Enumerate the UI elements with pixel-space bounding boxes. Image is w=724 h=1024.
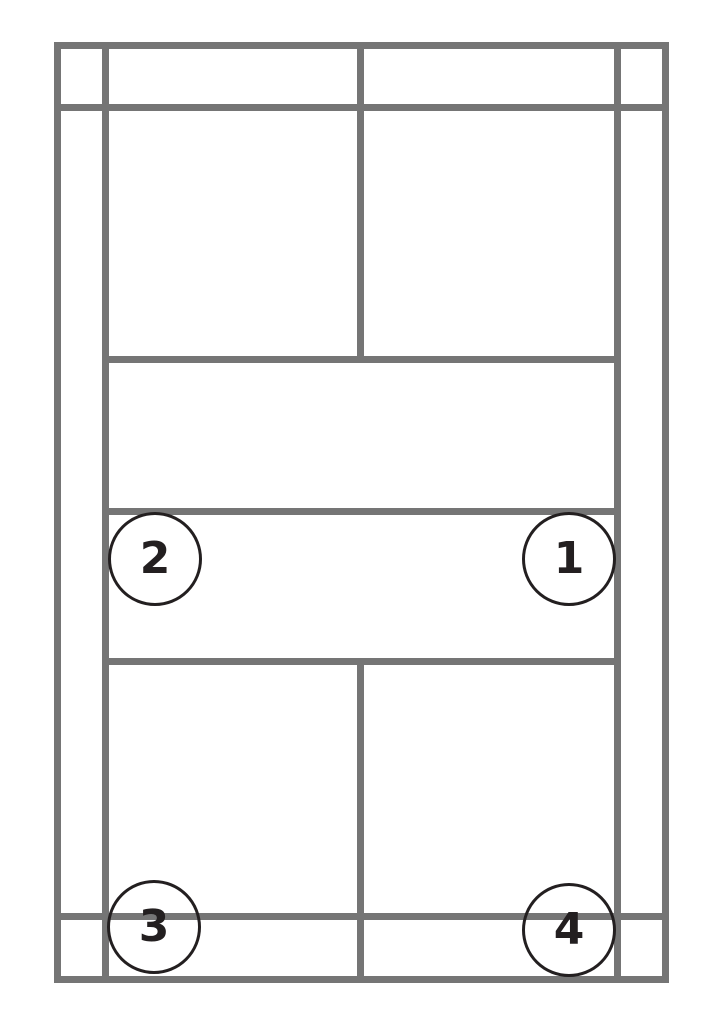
position-marker-1: 1 (522, 512, 616, 606)
position-marker-3: 3 (107, 880, 201, 974)
position-marker-3-label: 3 (139, 905, 170, 949)
net-line (102, 508, 621, 515)
center-line-lower (357, 658, 364, 983)
right-outer-sideline (662, 42, 669, 983)
top-short-service-line (102, 356, 621, 363)
court-diagram: 1 2 3 4 (0, 0, 724, 1024)
bottom-short-service-line (102, 658, 621, 665)
position-marker-2: 2 (108, 512, 202, 606)
position-marker-2-label: 2 (140, 537, 171, 581)
top-boundary-line (54, 42, 669, 49)
position-marker-4: 4 (522, 883, 616, 977)
top-long-service-line (54, 104, 669, 111)
bottom-boundary-line (54, 976, 669, 983)
position-marker-1-label: 1 (554, 537, 585, 581)
center-line-upper (357, 42, 364, 363)
left-outer-sideline (54, 42, 61, 983)
position-marker-4-label: 4 (554, 908, 585, 952)
